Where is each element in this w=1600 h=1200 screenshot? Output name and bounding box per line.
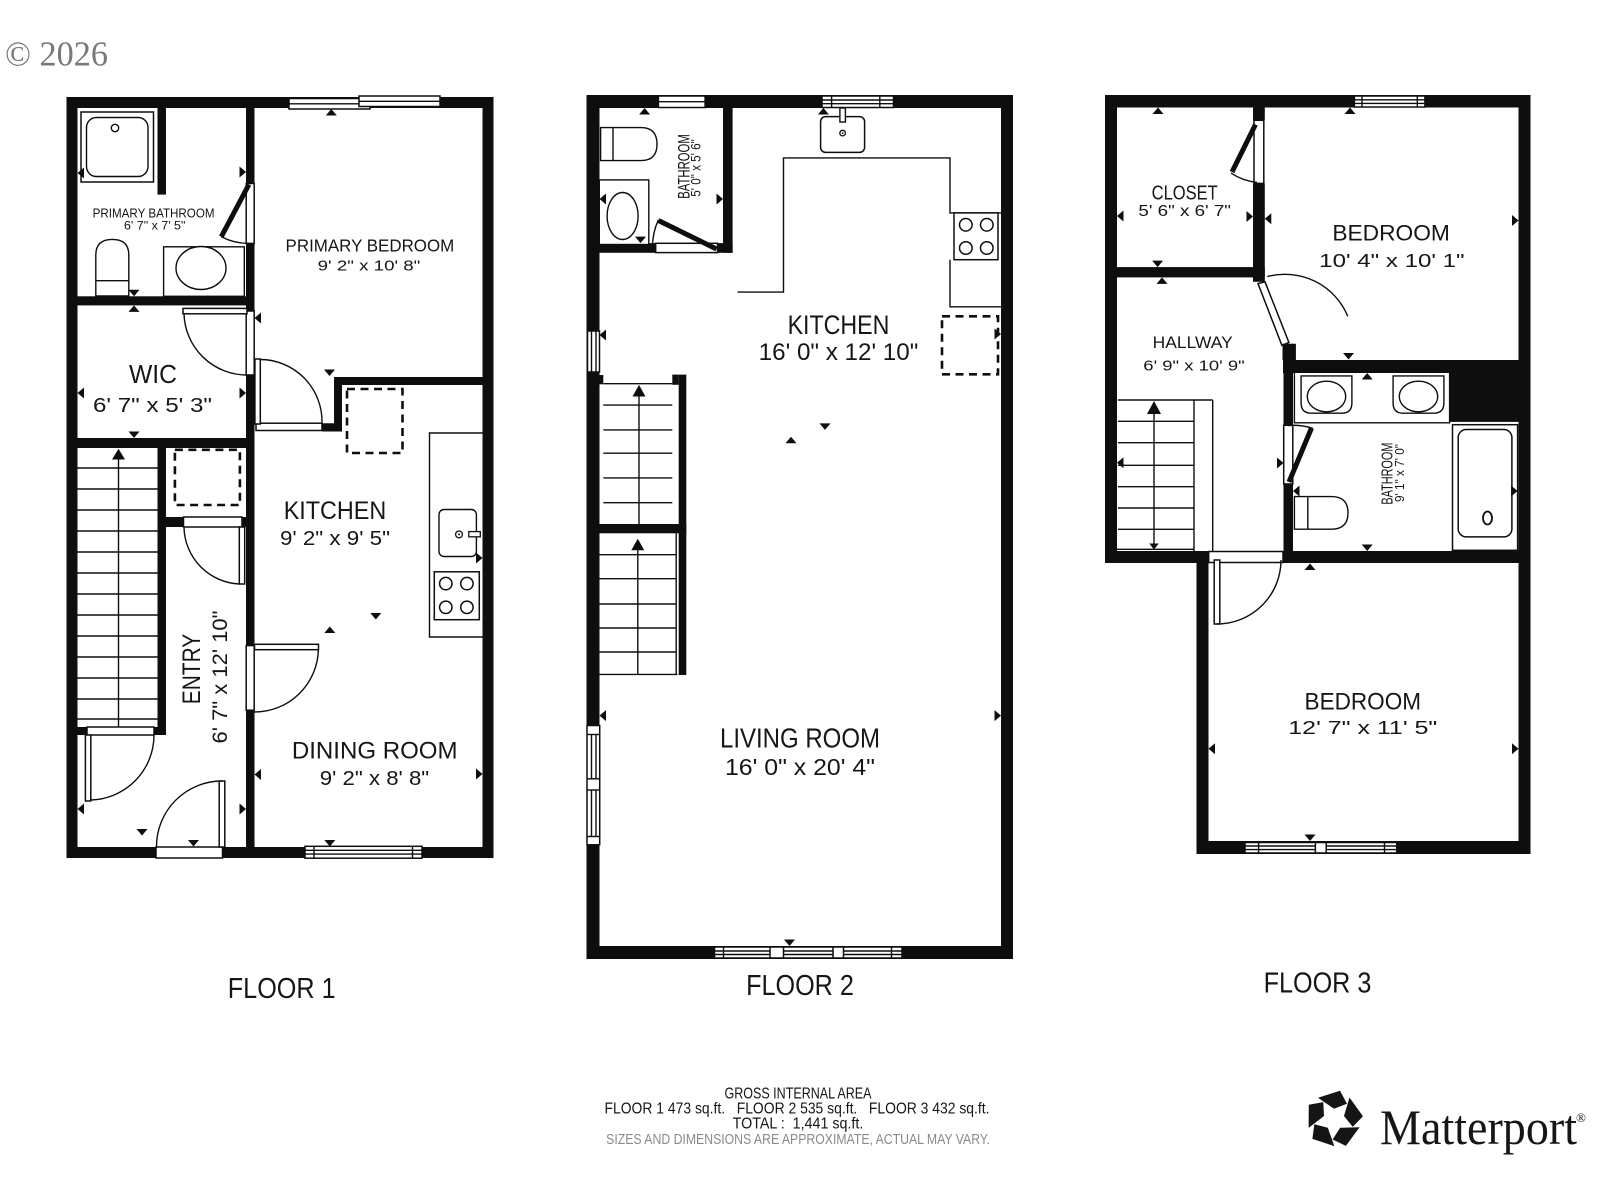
svg-text:FLOOR 3: FLOOR 3 [1264, 968, 1372, 1000]
svg-text:WIC: WIC [129, 359, 177, 389]
svg-text:TOTAL : 1,441 sq.ft.: TOTAL : 1,441 sq.ft. [733, 1116, 864, 1133]
svg-text:5' 0" x 5' 6": 5' 0" x 5' 6" [689, 139, 704, 197]
svg-text:9' 2" x 10' 8": 9' 2" x 10' 8" [318, 258, 421, 275]
svg-text:ENTRY: ENTRY [178, 633, 206, 704]
svg-text:9' 2" x 8' 8": 9' 2" x 8' 8" [320, 767, 429, 790]
svg-text:®: ® [1576, 1110, 1586, 1125]
svg-text:Matterport: Matterport [1380, 1099, 1577, 1155]
svg-text:5' 6" x 6' 7": 5' 6" x 6' 7" [1138, 203, 1231, 220]
svg-text:KITCHEN: KITCHEN [788, 310, 890, 340]
svg-text:© 2026: © 2026 [5, 35, 108, 74]
svg-text:FLOOR 2: FLOOR 2 [746, 970, 854, 1002]
svg-text:9' 1" x 7' 0": 9' 1" x 7' 0" [1393, 444, 1407, 502]
svg-text:16' 0" x 20' 4": 16' 0" x 20' 4" [725, 754, 875, 780]
svg-text:BEDROOM: BEDROOM [1305, 688, 1422, 715]
svg-text:16' 0" x 12' 10": 16' 0" x 12' 10" [759, 339, 919, 366]
svg-text:PRIMARY BATHROOM: PRIMARY BATHROOM [93, 206, 215, 221]
svg-text:SIZES AND DIMENSIONS ARE APPRO: SIZES AND DIMENSIONS ARE APPROXIMATE, AC… [606, 1132, 990, 1148]
svg-text:CLOSET: CLOSET [1152, 183, 1218, 205]
svg-text:12' 7" x 11' 5": 12' 7" x 11' 5" [1288, 717, 1437, 738]
svg-text:6' 7" x 7' 5": 6' 7" x 7' 5" [124, 221, 185, 233]
svg-text:PRIMARY BEDROOM: PRIMARY BEDROOM [286, 235, 455, 255]
svg-text:KITCHEN: KITCHEN [284, 497, 387, 525]
svg-text:6' 7" x 5' 3": 6' 7" x 5' 3" [93, 394, 212, 417]
svg-text:6' 9" x 10' 9": 6' 9" x 10' 9" [1143, 358, 1244, 375]
svg-text:9' 2" x 9' 5": 9' 2" x 9' 5" [280, 528, 390, 550]
svg-text:10' 4" x 10' 1": 10' 4" x 10' 1" [1319, 250, 1464, 271]
svg-text:BEDROOM: BEDROOM [1332, 221, 1450, 246]
svg-text:LIVING ROOM: LIVING ROOM [720, 723, 880, 754]
svg-text:DINING ROOM: DINING ROOM [292, 738, 458, 765]
svg-text:6' 7" x 12' 10": 6' 7" x 12' 10" [209, 611, 232, 744]
svg-text:HALLWAY: HALLWAY [1153, 334, 1233, 352]
svg-text:FLOOR 1: FLOOR 1 [228, 973, 336, 1005]
